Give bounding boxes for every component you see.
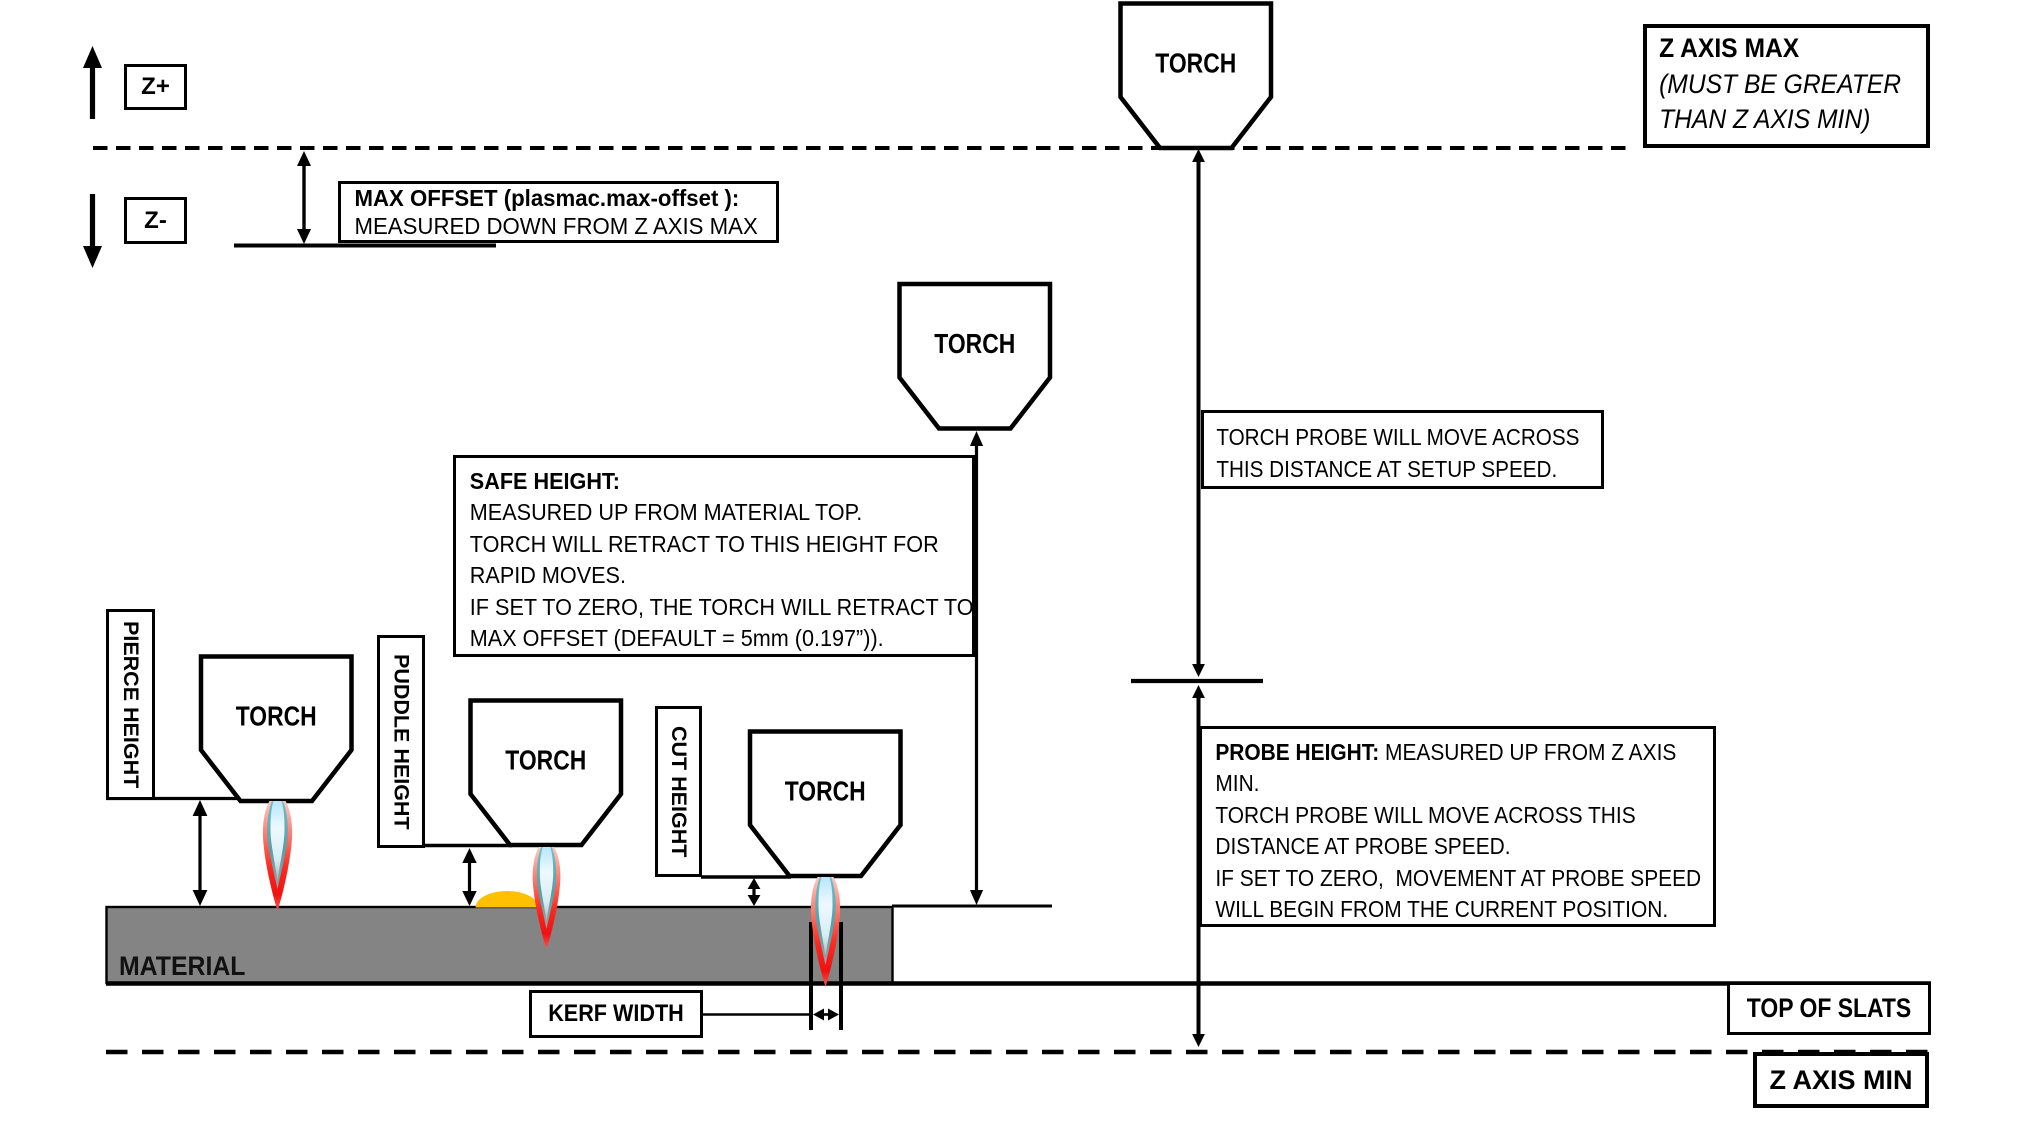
svg-text:TORCH: TORCH	[1155, 48, 1236, 79]
svg-text:TORCH: TORCH	[934, 328, 1015, 359]
svg-text:TORCH: TORCH	[236, 701, 317, 732]
svg-text:MATERIAL: MATERIAL	[119, 952, 246, 981]
svg-text:TORCH: TORCH	[505, 745, 586, 776]
svg-text:TORCH: TORCH	[785, 776, 866, 807]
